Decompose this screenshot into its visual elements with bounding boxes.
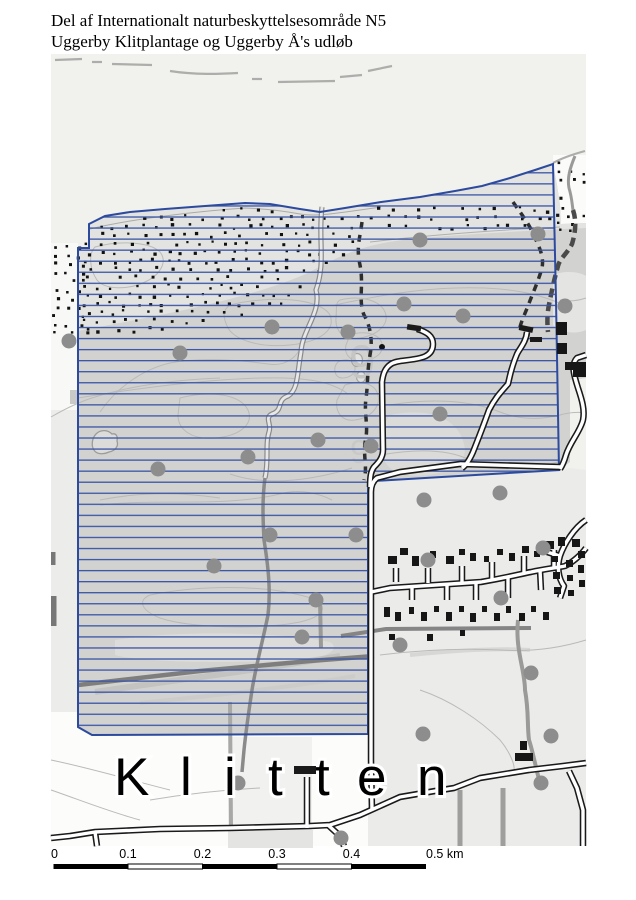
svg-text:e: e bbox=[357, 748, 386, 807]
svg-text:0.2: 0.2 bbox=[194, 847, 211, 861]
svg-text:Del af Internationalt naturbes: Del af Internationalt naturbeskyttelseso… bbox=[51, 11, 386, 30]
svg-text:0.1: 0.1 bbox=[119, 847, 136, 861]
svg-text:n: n bbox=[417, 748, 446, 807]
svg-text:0.3: 0.3 bbox=[268, 847, 285, 861]
svg-text:K: K bbox=[114, 748, 149, 807]
svg-text:l: l bbox=[180, 748, 192, 807]
svg-text:t: t bbox=[315, 748, 330, 807]
svg-text:0: 0 bbox=[51, 847, 58, 861]
svg-text:Uggerby Klitplantage og Uggerb: Uggerby Klitplantage og Uggerby Å's udlø… bbox=[51, 32, 353, 51]
svg-text:0.5 km: 0.5 km bbox=[426, 847, 464, 861]
svg-text:i: i bbox=[224, 748, 236, 807]
svg-text:t: t bbox=[268, 748, 283, 807]
svg-text:0.4: 0.4 bbox=[343, 847, 360, 861]
